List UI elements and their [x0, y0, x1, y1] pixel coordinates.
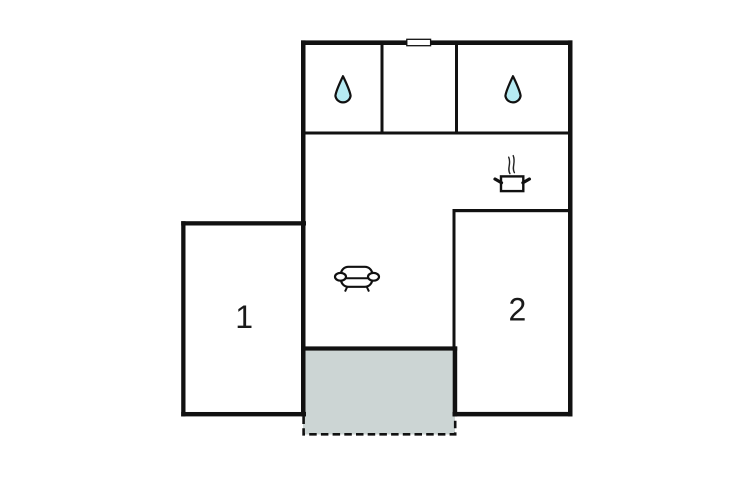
svg-text:2: 2 — [509, 292, 527, 328]
svg-text:1: 1 — [235, 299, 253, 335]
